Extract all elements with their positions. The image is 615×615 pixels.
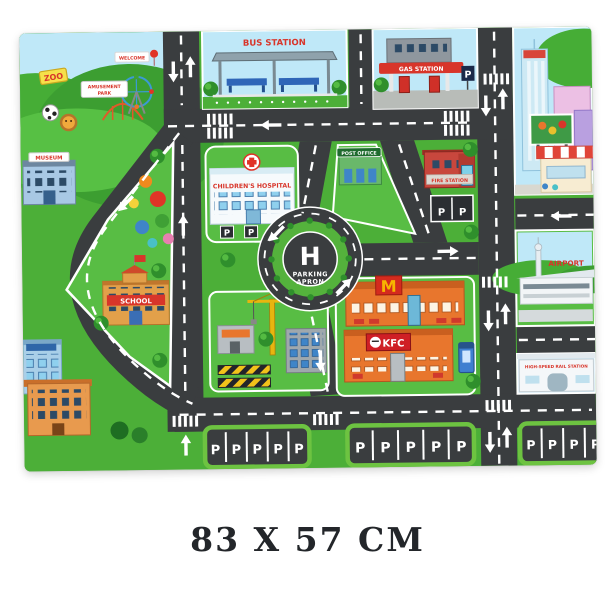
control-tower-icon: [536, 248, 541, 278]
size-caption: 83 X 57 CM: [0, 520, 615, 559]
hospital-label: CHILDREN'S HOSPITAL: [213, 183, 291, 191]
shopping-mall: [513, 27, 597, 195]
parking-lot-3: P P P P: [520, 423, 597, 464]
p-sign: P: [220, 226, 233, 239]
lot1-p: P: [252, 443, 262, 458]
gas-station: GAS STATION P: [373, 28, 478, 109]
lot2-p: P: [406, 440, 416, 456]
lot1-p: P: [211, 443, 221, 458]
lot1-p: P: [232, 443, 242, 458]
rail-station-label: HIGH-SPEED RAIL STATION: [525, 364, 588, 370]
parking-lot-1: P P P P P: [205, 426, 310, 467]
fire-station-label: FIRE STATION: [431, 178, 468, 184]
parking-apron-label-2: APRON: [296, 278, 324, 286]
gas-station-label: GAS STATION: [399, 66, 444, 74]
amusement-park-sign: AMUSEMENT PARK: [81, 81, 127, 97]
museum-label: MUSEUM: [35, 155, 62, 161]
city-playmat: ZOO WELCOME AMUSEMENT PARK MUSEUM: [19, 27, 596, 472]
lot3-p: P: [591, 437, 597, 452]
roundabout: H PARKING APRON: [257, 207, 363, 312]
lot2-p: P: [456, 439, 466, 455]
school-flag-icon: [134, 255, 145, 262]
lot2-p: P: [355, 440, 365, 456]
mcdonalds-arches-icon: M: [381, 277, 397, 296]
welcome-banner: WELCOME: [115, 52, 149, 62]
parking-lot-2: P P P P P: [347, 424, 474, 465]
restaurant-block: M KFC: [335, 275, 475, 396]
kfc: KFC: [344, 329, 453, 382]
welcome-label: WELCOME: [119, 55, 145, 61]
playmat-artwork: ZOO WELCOME AMUSEMENT PARK MUSEUM: [19, 27, 596, 472]
kfc-label: KFC: [382, 338, 404, 349]
helipad: H PARKING APRON: [283, 232, 338, 286]
awning-shop: [537, 146, 596, 192]
bus-station-label: BUS STATION: [243, 38, 306, 49]
lot3-p: P: [569, 437, 578, 452]
lot1-p: P: [294, 442, 304, 457]
lot2-p: P: [431, 440, 441, 456]
bench-icon: [227, 78, 267, 85]
hospital-p2: P: [248, 228, 254, 238]
school-label: SCHOOL: [120, 297, 152, 305]
phone-booth-icon: [459, 343, 474, 373]
apartment-building: [24, 379, 93, 436]
museum-building: MUSEUM: [23, 152, 76, 204]
lot1-p: P: [273, 442, 283, 457]
fire-parking-stalls: P P: [431, 195, 473, 221]
fire-p2: P: [459, 207, 466, 218]
mcdonalds: M: [345, 275, 464, 326]
bench-icon: [279, 78, 319, 85]
lot2-p: P: [380, 440, 390, 456]
hospital-p1: P: [224, 229, 230, 239]
p-sign: P: [244, 226, 257, 239]
lot3-p: P: [526, 437, 535, 452]
airport-label: AIRPORT: [548, 259, 584, 268]
rail-station: HIGH-SPEED RAIL STATION: [517, 353, 596, 394]
amusement-park-label-1: AMUSEMENT: [88, 84, 122, 90]
lion-icon: [61, 115, 76, 130]
gas-p-label: P: [464, 70, 471, 81]
post-office-label: POST OFFICE: [341, 151, 376, 157]
fire-station: FIRE STATION P P: [422, 149, 477, 221]
fire-p1: P: [438, 207, 445, 218]
bus-station: BUS STATION: [202, 30, 347, 109]
lot3-p: P: [548, 437, 557, 452]
fuel-pump-icon: [399, 77, 409, 93]
helipad-h-label: H: [299, 242, 320, 271]
fuel-pump-icon: [429, 76, 439, 92]
red-cross-icon: [244, 154, 260, 170]
amusement-park-label-2: PARK: [98, 91, 112, 97]
